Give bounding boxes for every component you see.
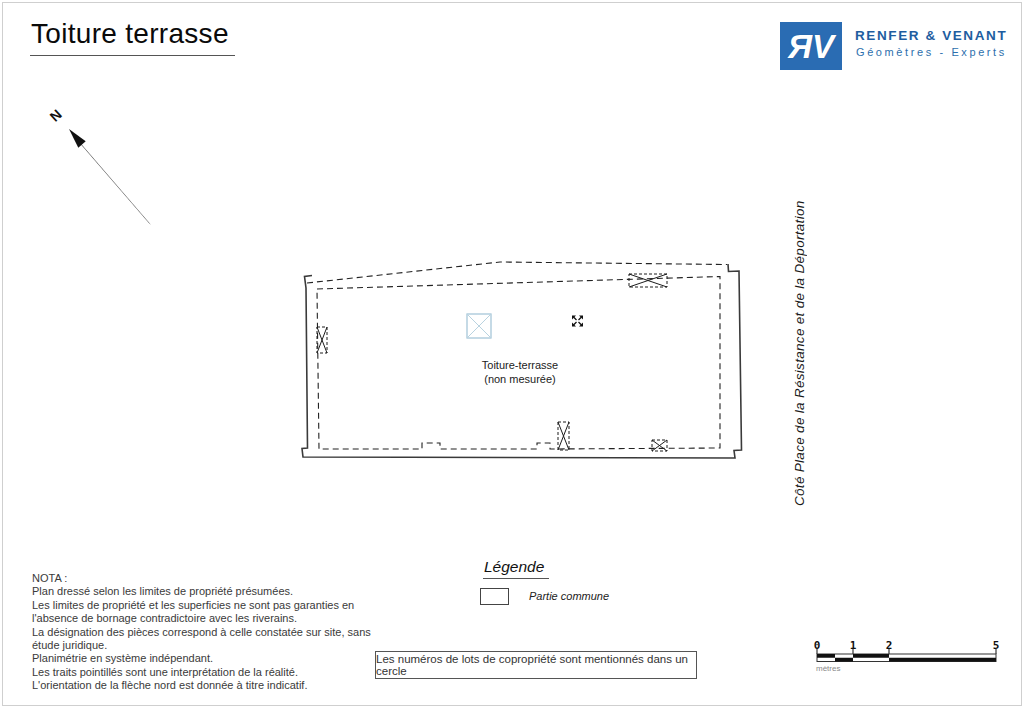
lot-numbers-note-box: Les numéros de lots de copropriété sont … — [375, 651, 697, 679]
terrace-label: Toiture-terrasse — [455, 359, 585, 371]
nota-block: NOTA : Plan dressé selon les limites de … — [32, 572, 371, 693]
scale-tick-2: 2 — [886, 639, 893, 652]
north-arrow-icon: N — [47, 106, 152, 225]
legend-item-label: Partie commune — [529, 590, 609, 602]
street-side-label: Côté Place de la Résistance et de la Dép… — [792, 186, 816, 520]
legend-swatch-partie-commune — [480, 588, 509, 605]
feature-top-right-vent — [629, 274, 667, 287]
plan-sheet: Toiture terrasse ЯV RENFER & VENANT Géom… — [0, 0, 1024, 708]
feature-left-vent — [317, 327, 327, 353]
scale-unit-label: mètres — [816, 664, 840, 673]
north-label: N — [47, 106, 65, 125]
nota-heading: NOTA : — [32, 572, 371, 585]
terrace-sublabel: (non mesurée) — [455, 373, 585, 385]
feature-bottom-right-vent — [652, 440, 667, 451]
nota-text: Plan dressé selon les limites de proprié… — [32, 585, 371, 692]
scale-tick-5: 5 — [993, 639, 1000, 652]
feature-bottom-middle-vent — [558, 422, 569, 450]
roof-edge-dashed — [307, 262, 727, 283]
scale-tick-1: 1 — [850, 639, 857, 652]
scale-tick-0: 0 — [814, 639, 821, 652]
legend-title: Légende — [483, 558, 549, 579]
scale-bar — [817, 649, 996, 662]
expand-arrows-icon — [572, 316, 583, 327]
skylight-symbol — [467, 314, 491, 338]
